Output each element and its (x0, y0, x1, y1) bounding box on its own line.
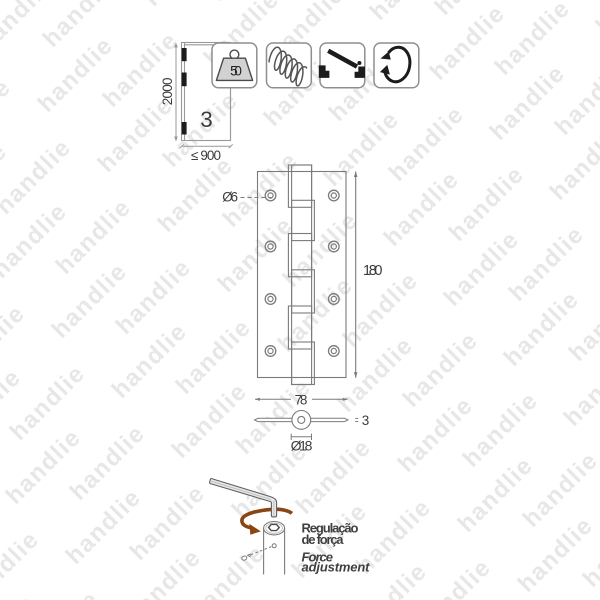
svg-text:handlie: handlie (338, 267, 424, 353)
svg-text:handlie: handlie (51, 194, 137, 280)
svg-text:handlie: handlie (125, 480, 211, 566)
svg-text:50: 50 (230, 64, 242, 79)
svg-text:handlie: handlie (439, 226, 525, 312)
svg-text:handlie: handlie (518, 447, 600, 533)
svg-text:≤ 900: ≤ 900 (191, 148, 221, 163)
svg-text:handlie: handlie (319, 106, 405, 192)
svg-text:handlie: handlie (453, 452, 539, 538)
svg-text:2000: 2000 (160, 78, 175, 106)
svg-text:handlie: handlie (398, 327, 484, 413)
svg-text:handlie: handlie (458, 387, 544, 473)
svg-text:Ø18: Ø18 (291, 438, 313, 454)
svg-text:handlie: handlie (379, 166, 465, 252)
svg-text:handlie: handlie (213, 212, 299, 298)
svg-text:handlie: handlie (19, 586, 105, 600)
svg-text:handlie: handlie (0, 526, 45, 600)
svg-text:handlie: handlie (111, 254, 197, 340)
svg-text:handlie: handlie (384, 101, 470, 187)
svg-text:handlie: handlie (504, 221, 590, 307)
svg-text:handlie: handlie (513, 512, 599, 598)
svg-text:handlie: handlie (393, 392, 479, 478)
svg-text:handlie: handlie (0, 134, 77, 220)
svg-text:handlie: handlie (139, 0, 225, 12)
svg-text:180: 180 (363, 263, 383, 279)
svg-text:handlie: handlie (171, 314, 257, 400)
svg-text:handlie: handlie (499, 286, 585, 372)
svg-text:3: 3 (200, 107, 213, 132)
svg-text:3: 3 (362, 413, 370, 428)
svg-text:handlie: handlie (591, 0, 600, 40)
svg-text:handlie: handlie (33, 32, 119, 118)
svg-text:handlie: handlie (485, 60, 571, 146)
svg-text:de força: de força (302, 532, 345, 547)
svg-text:handlie: handlie (0, 590, 41, 600)
svg-text:handlie: handlie (425, 0, 511, 86)
svg-text:78: 78 (295, 392, 308, 407)
svg-text:handlie: handlie (65, 420, 151, 506)
svg-text:adjustment: adjustment (302, 560, 371, 575)
svg-text:Ø6: Ø6 (222, 189, 238, 204)
svg-text:handlie: handlie (444, 161, 530, 247)
svg-text:handlie: handlie (5, 360, 91, 446)
svg-text:handlie: handlie (278, 207, 364, 293)
